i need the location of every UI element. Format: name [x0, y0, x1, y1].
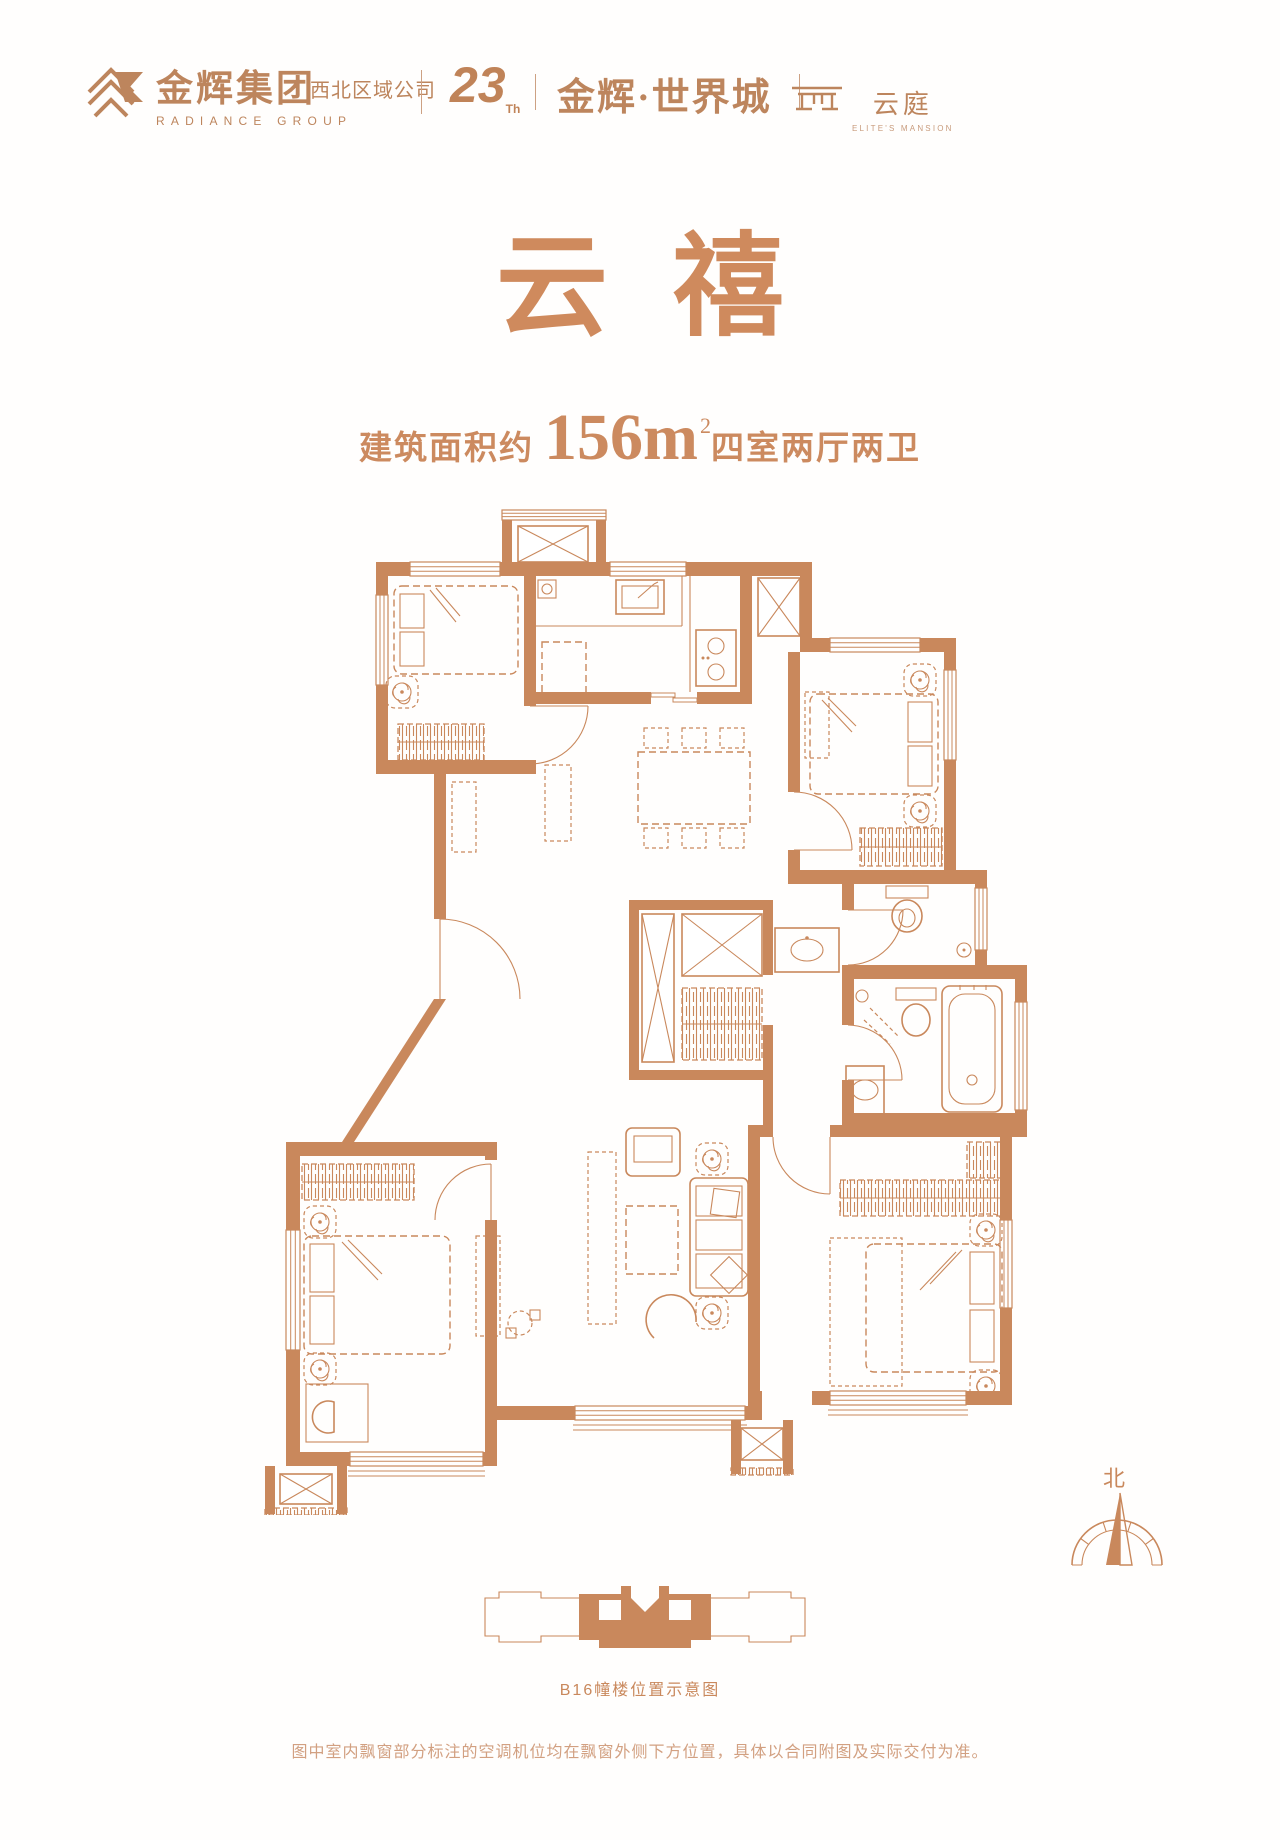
floor-plan — [230, 430, 1050, 1515]
building-location-diagram — [475, 1582, 815, 1668]
master-bathroom — [846, 985, 1002, 1114]
bedroom-top-right — [805, 664, 942, 866]
brand-region: 西北区域公司 — [310, 74, 436, 103]
ac-platform-top — [502, 510, 606, 570]
anniversary-suffix: Th — [506, 102, 521, 116]
sub-brand-en: ELITE'S MANSION — [852, 124, 954, 133]
anniversary-number: 23 — [450, 57, 506, 113]
anniversary-logo: 23Th — [450, 60, 520, 115]
bedroom-top-left — [386, 586, 518, 760]
unit-title: 云禧 — [0, 196, 1280, 358]
walk-in-closet — [642, 914, 762, 1062]
header-divider-1 — [421, 70, 422, 114]
ac-platform-bottom-left — [265, 1466, 347, 1515]
poster-page: 金辉集团 RADIANCE GROUP 西北区域公司 23Th 金辉·世界城 云… — [0, 0, 1280, 1840]
radiance-logo-icon — [85, 58, 147, 118]
equipment-box-top-right — [758, 578, 800, 636]
ac-platform-bottom-center — [731, 1420, 793, 1475]
compass-label: 北 — [1103, 1466, 1125, 1491]
header-divider-2 — [535, 74, 536, 110]
bedroom-bottom-left — [302, 1164, 450, 1442]
compass-north-icon: 北 — [1052, 1460, 1182, 1595]
master-bedroom — [830, 1142, 1003, 1402]
dining-area — [545, 728, 750, 848]
pavilion-icon — [790, 82, 844, 112]
sub-brand-block: 云庭 ELITE'S MANSION — [852, 84, 954, 133]
building-location-caption: B16幢楼位置示意图 — [0, 1676, 1280, 1700]
kitchen — [536, 576, 736, 700]
living-room — [476, 1128, 748, 1338]
corridor-washbasin — [775, 928, 839, 972]
project-name: 金辉·世界城 — [557, 66, 772, 121]
guest-bathroom — [886, 886, 971, 957]
disclaimer-text: 图中室内飘窗部分标注的空调机位均在飘窗外侧下方位置，具体以合同附图及实际交付为准… — [0, 1738, 1280, 1762]
sub-brand-cn: 云庭 — [852, 84, 954, 121]
entry-hall — [452, 782, 476, 852]
brand-name-en: RADIANCE GROUP — [156, 114, 352, 128]
